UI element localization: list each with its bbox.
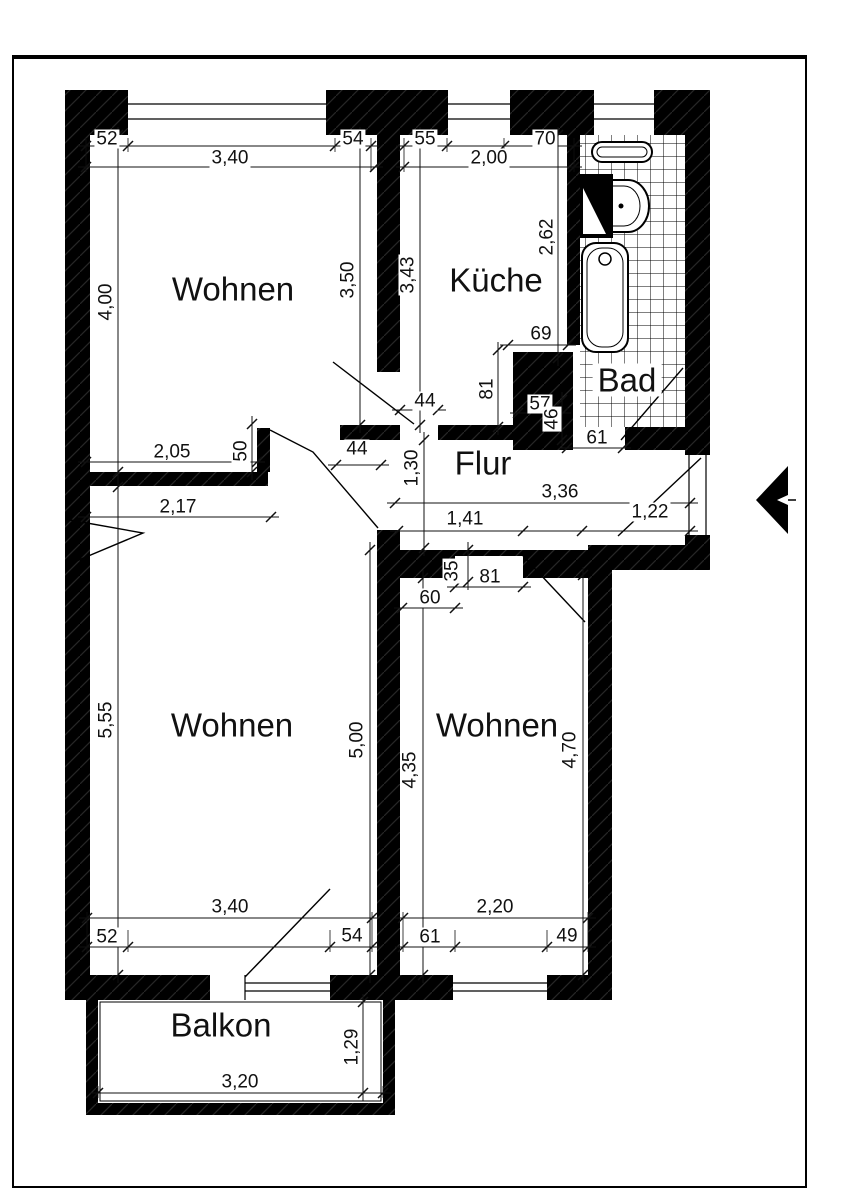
dim-label: 2,62 <box>538 217 557 258</box>
room-label-wohnen-right: Wohnen <box>436 709 558 742</box>
dim-label: 3,43 <box>399 255 418 296</box>
dim-label: 35 <box>443 558 462 583</box>
room-label-kueche: Küche <box>449 264 543 297</box>
dim-label: 54 <box>340 130 365 149</box>
dim-label: 70 <box>532 130 557 149</box>
dim-label: 2,00 <box>469 149 510 168</box>
room-label-wohnen-left: Wohnen <box>171 709 293 742</box>
dim-label: 52 <box>94 928 119 947</box>
dim-label: 1,29 <box>343 1027 362 1068</box>
dim-label: 49 <box>554 927 579 946</box>
dim-label: 4,00 <box>97 282 116 323</box>
room-label-wohnen-top: Wohnen <box>172 273 294 306</box>
dim-label: 1,30 <box>403 448 422 489</box>
dim-label: 44 <box>412 392 437 411</box>
dim-label: 1,22 <box>630 503 671 522</box>
dim-label: 1,41 <box>445 510 486 529</box>
entrance-arrow-icon <box>756 466 796 534</box>
dim-label: 3,40 <box>210 898 251 917</box>
dim-label: 3,36 <box>540 483 581 502</box>
room-label-balkon: Balkon <box>171 1009 272 1042</box>
dim-label: 3,40 <box>210 149 251 168</box>
balcony-door-swing <box>245 889 330 977</box>
sink <box>612 180 649 232</box>
towel-radiator <box>592 142 652 162</box>
floor-plan-page: Wohnen Küche Bad Flur Wohnen Wohnen Balk… <box>0 0 848 1200</box>
dim-label: 69 <box>528 325 553 344</box>
dim-label: 2,20 <box>475 898 516 917</box>
dim-label: 52 <box>94 130 119 149</box>
dim-label: 61 <box>417 928 442 947</box>
room-label-bad: Bad <box>593 364 662 397</box>
entrance-door-opening <box>685 455 710 535</box>
kueche-door-swing <box>333 362 414 424</box>
dim-label: 2,05 <box>152 443 193 462</box>
shaft-block <box>580 174 613 238</box>
bathtub <box>582 243 628 352</box>
room-label-flur: Flur <box>455 447 512 480</box>
dim-label: 4,35 <box>401 750 420 791</box>
dim-label: 55 <box>412 130 437 149</box>
dim-label: 81 <box>478 376 497 401</box>
window-wohnen-top <box>128 90 326 135</box>
dim-label: 50 <box>232 438 251 463</box>
dim-label: 60 <box>417 589 442 608</box>
dim-label: 5,00 <box>348 720 367 761</box>
dim-label: 3,20 <box>220 1073 261 1092</box>
dim-label: 44 <box>344 440 369 459</box>
dim-label: 54 <box>339 927 364 946</box>
window-wohnen-right <box>453 975 547 1000</box>
dim-label: 4,70 <box>561 730 580 771</box>
dim-label: 81 <box>477 568 502 587</box>
dim-label: 2,17 <box>158 498 199 517</box>
dim-label: 61 <box>584 429 609 448</box>
dim-label: 5,55 <box>97 700 116 741</box>
dim-label: 46 <box>543 406 562 431</box>
balcony-door-window <box>210 975 330 1000</box>
window-kueche <box>448 90 510 135</box>
window-bad <box>594 90 654 135</box>
dim-label: 3,50 <box>339 260 358 301</box>
